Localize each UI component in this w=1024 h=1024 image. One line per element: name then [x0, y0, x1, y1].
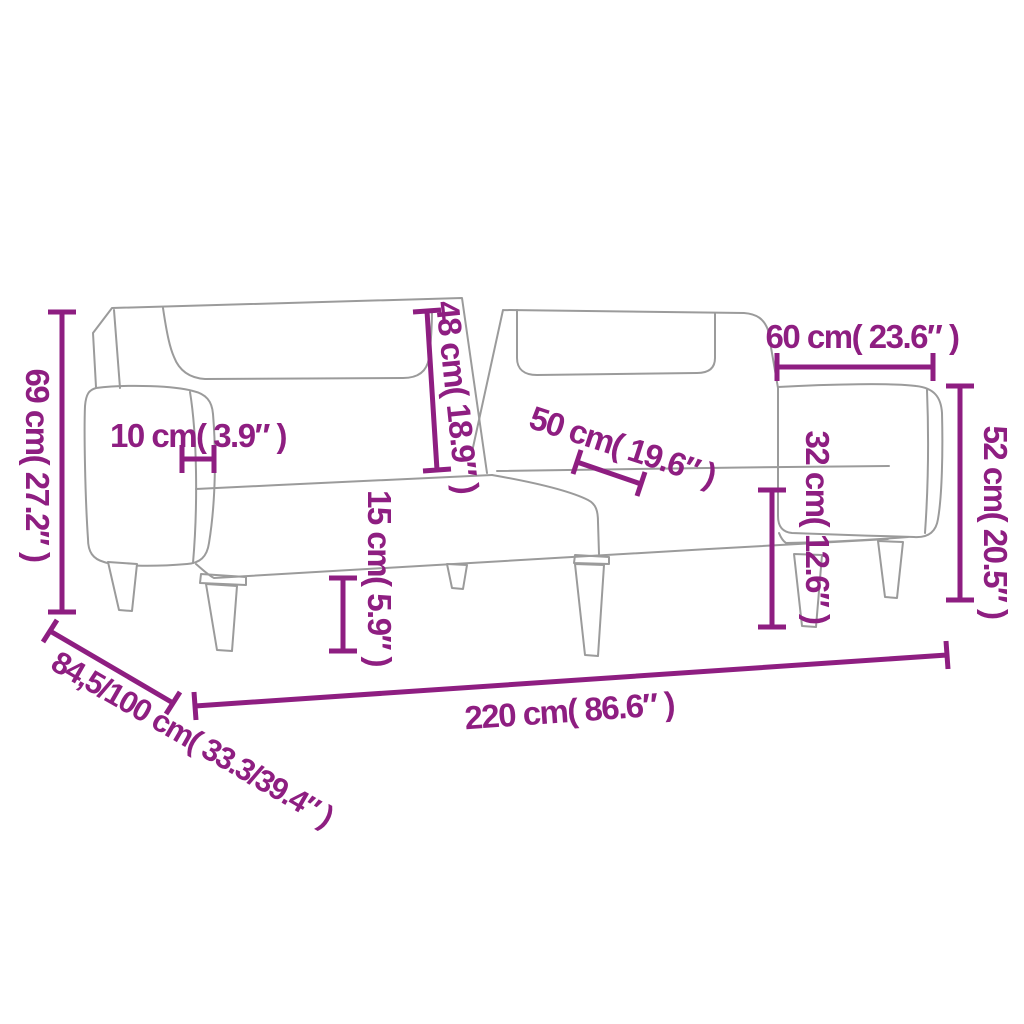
sofa-leg-front-middle [575, 564, 604, 656]
dimension-label-seat-height: 32 cm( 12.6″ ) [799, 431, 836, 624]
dimension-label-overall-depth: 84,5/100 cm( 33.3/39.4″ ) [46, 644, 340, 834]
dimension-chaise-length: 60 cm( 23.6″ ) [766, 318, 959, 381]
dimension-diagram-canvas: 69 cm( 27.2″ ) 10 cm( 3.9″ ) 48 cm( 18.9… [0, 0, 1024, 1024]
dimension-label-leg-height: 15 cm( 5.9″ ) [361, 490, 398, 667]
dimension-label-chaise-length: 60 cm( 23.6″ ) [766, 318, 959, 355]
dimension-backrest-height: 48 cm( 18.9″ ) [413, 299, 486, 495]
sofa-leg-rear-middle [447, 564, 467, 589]
right-armrest-seam [925, 390, 928, 533]
sofa-leg-rear-right [878, 541, 903, 598]
left-backrest-cushion-seam [163, 308, 432, 379]
dimension-line-seat-height [758, 490, 786, 627]
dimension-line-chaise-length [777, 353, 933, 381]
dimension-label-overall-length: 220 cm( 86.6″ ) [463, 685, 675, 737]
sofa-dimension-illustration: 69 cm( 27.2″ ) 10 cm( 3.9″ ) 48 cm( 18.9… [0, 0, 1024, 1024]
sofa-leg-front-left [206, 584, 237, 651]
dimension-label-overall-height: 69 cm( 27.2″ ) [19, 369, 56, 562]
dimension-label-chaise-height: 52 cm( 20.5″ ) [977, 426, 1014, 619]
dimension-overall-depth: 84,5/100 cm( 33.3/39.4″ ) [43, 620, 339, 834]
dimension-seat-height: 32 cm( 12.6″ ) [758, 431, 836, 627]
dimension-overall-length: 220 cm( 86.6″ ) [194, 641, 948, 736]
seat-section-seam [492, 475, 599, 554]
dimension-leg-height: 15 cm( 5.9″ ) [329, 490, 398, 667]
dimension-seat-width: 50 cm( 19.6″ ) [525, 399, 720, 496]
dimension-chaise-height: 52 cm( 20.5″ ) [946, 386, 1014, 619]
dimension-label-armrest-width: 10 cm( 3.9″ ) [110, 417, 287, 454]
right-backrest-cushion-seam [517, 310, 715, 375]
seat-front-edge [196, 539, 888, 578]
dimension-armrest-width: 10 cm( 3.9″ ) [110, 417, 287, 473]
dimension-overall-height: 69 cm( 27.2″ ) [19, 312, 76, 612]
dimension-annotations: 69 cm( 27.2″ ) 10 cm( 3.9″ ) 48 cm( 18.9… [19, 299, 1014, 834]
sofa-leg-rear-left [108, 562, 137, 611]
dimension-line-leg-height [329, 578, 357, 651]
dimension-line-chaise-height [946, 386, 974, 600]
